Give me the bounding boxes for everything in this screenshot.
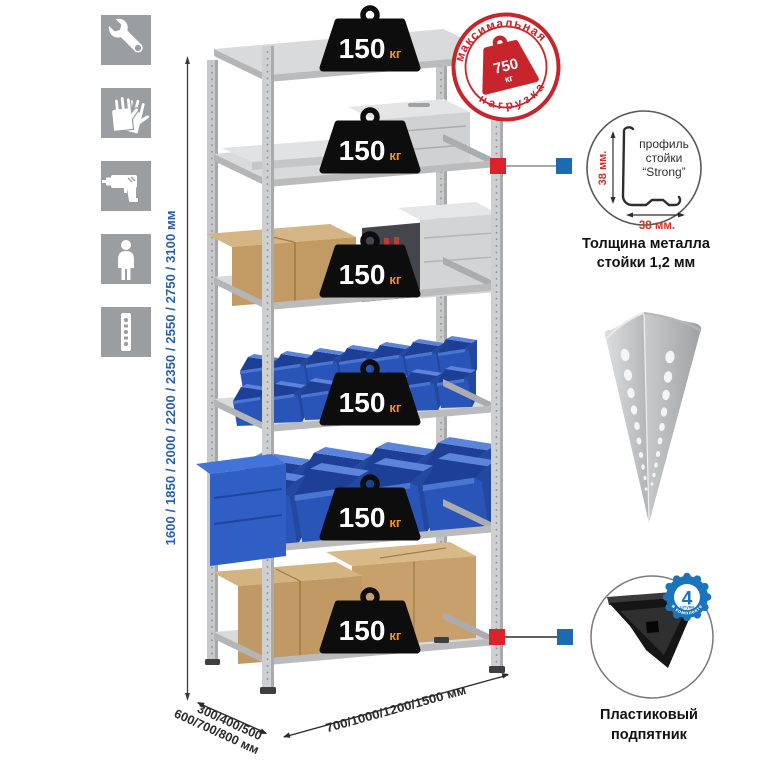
profile-label-1: профиль (639, 137, 689, 151)
profile-callout-connector (490, 158, 572, 174)
width-dimension: 700/1000/1200/1500 мм (283, 673, 509, 738)
metal-thickness-caption-1: Толщина металла (582, 236, 711, 252)
wrench-icon (101, 15, 151, 65)
profile-horizontal-dim: 38 мм. (639, 220, 675, 232)
blue-marker (556, 158, 572, 174)
red-marker (489, 629, 505, 645)
height-dimension: 1600 / 1850 / 2000 / 2200 / 2350 / 2550 … (163, 56, 190, 701)
rack-post-icon (101, 307, 151, 357)
load-unit: кг (389, 515, 402, 530)
depth-dimension: 300/400/500 600/700/800 мм (172, 694, 267, 757)
infographic-canvas: 1600 / 1850 / 2000 / 2200 / 2350 / 2550 … (0, 0, 765, 765)
plastic-foot-detail: 4 штуки в комплекте Пластиковый подпятни… (591, 573, 713, 743)
tools-icon-column (101, 15, 153, 357)
drill-icon (101, 161, 151, 211)
gloves-icon (101, 88, 153, 138)
height-dimension-label: 1600 / 1850 / 2000 / 2200 / 2350 / 2550 … (163, 211, 178, 546)
load-unit: кг (389, 46, 402, 61)
profile-vertical-dim: 38 мм. (597, 151, 609, 186)
weight-badge: 150кг (323, 8, 417, 68)
foot-callout-connector (489, 629, 573, 645)
load-value: 150 (339, 135, 386, 166)
load-unit: кг (389, 148, 402, 163)
load-value: 150 (339, 387, 386, 418)
load-value: 150 (339, 502, 386, 533)
load-value: 150 (339, 259, 386, 290)
product-infographic: 1600 / 1850 / 2000 / 2200 / 2350 / 2550 … (0, 0, 765, 765)
width-dimension-label: 700/1000/1200/1500 мм (324, 683, 467, 735)
profile-detail: 38 мм. 38 мм. профиль стойки “Strong” То… (582, 111, 711, 271)
load-value: 150 (339, 615, 386, 646)
profile-label-2: стойки (646, 151, 683, 165)
angle-post-image (605, 313, 701, 523)
load-unit: кг (389, 628, 402, 643)
plastic-foot-caption-1: Пластиковый (600, 707, 698, 723)
blue-marker (557, 629, 573, 645)
metal-thickness-caption-2: стойки 1,2 мм (597, 255, 696, 271)
person-icon (101, 234, 151, 284)
red-marker (490, 158, 506, 174)
load-unit: кг (389, 400, 402, 415)
load-value: 150 (339, 33, 386, 64)
badge-sub-label: штуки (680, 605, 694, 610)
load-unit: кг (389, 272, 402, 287)
plastic-foot-caption-2: подпятник (611, 727, 688, 743)
profile-label-3: “Strong” (642, 165, 685, 179)
